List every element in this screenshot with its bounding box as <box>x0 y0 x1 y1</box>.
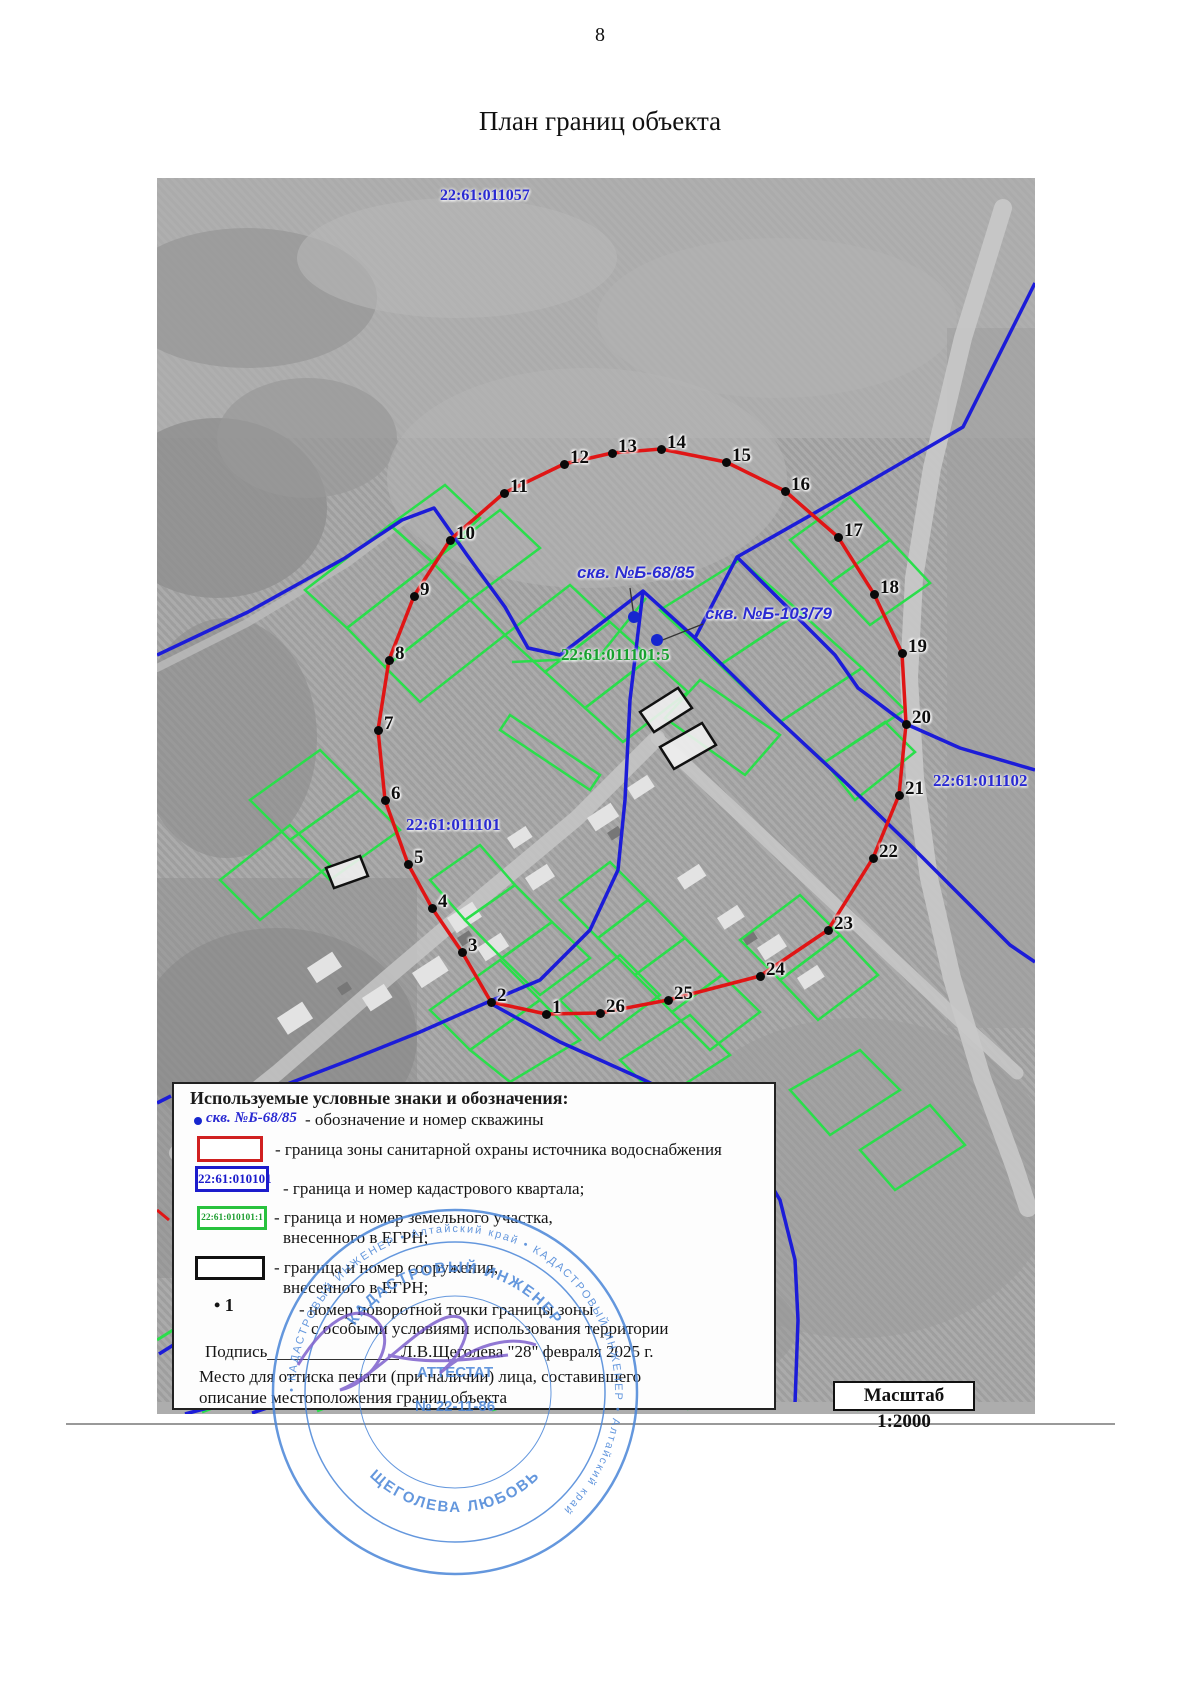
boundary-point-dot <box>895 791 904 800</box>
boundary-point-dot <box>596 1009 605 1018</box>
quarter-symbol: 22:61:010101 <box>195 1166 269 1192</box>
boundary-point-dot <box>458 948 467 957</box>
boundary-point-dot <box>428 904 437 913</box>
legend-item-text: - граница и номер кадастрового квартала; <box>283 1179 584 1199</box>
map-label-well-2-label: скв. №Б-103/79 <box>705 605 832 623</box>
boundary-point-label: 6 <box>391 784 401 803</box>
boundary-point-label: 24 <box>766 960 785 979</box>
boundary-point-dot <box>781 487 790 496</box>
boundary-point-dot <box>824 926 833 935</box>
map-label-well-1-label: скв. №Б-68/85 <box>577 564 695 582</box>
boundary-point-label: 1 <box>552 998 562 1017</box>
boundary-point-dot <box>722 458 731 467</box>
boundary-point-label: 20 <box>912 708 931 727</box>
parcel-symbol: 22:61:010101:1 <box>197 1206 267 1230</box>
page-title: План границ объекта <box>0 106 1200 137</box>
boundary-point-dot <box>898 649 907 658</box>
document-page: 8 План границ объекта <box>0 0 1200 1697</box>
boundary-point-dot <box>542 1010 551 1019</box>
boundary-point-label: 17 <box>844 521 863 540</box>
boundary-point-dot <box>664 996 673 1005</box>
legend-item-text: - обозначение и номер скважины <box>305 1110 544 1130</box>
boundary-point-label: 12 <box>570 448 589 467</box>
well-symbol <box>194 1117 202 1125</box>
boundary-point-dot <box>446 536 455 545</box>
boundary-point-label: 23 <box>834 914 853 933</box>
structure-symbol <box>195 1256 265 1280</box>
svg-text:ЩЕГОЛЕВА ЛЮБОВЬ: ЩЕГОЛЕВА ЛЮБОВЬ <box>367 1467 544 1516</box>
notary-stamp: • КАДАСТРОВЫЙ ИНЖЕНЕР • Алтайский край •… <box>268 1205 644 1585</box>
boundary-point-label: 8 <box>395 644 405 663</box>
boundary-point-label: 14 <box>667 433 686 452</box>
boundary-point-dot <box>756 972 765 981</box>
boundary-point-label: 19 <box>908 637 927 656</box>
page-number: 8 <box>0 24 1200 47</box>
boundary-point-label: 16 <box>791 475 810 494</box>
boundary-point-dot <box>487 998 496 1007</box>
boundary-point-label: 18 <box>880 578 899 597</box>
map-label-quarter-top: 22:61:011057 <box>440 188 530 205</box>
boundary-point-dot <box>560 460 569 469</box>
boundary-point-label: 5 <box>414 848 424 867</box>
red-zone-symbol <box>197 1136 263 1162</box>
turning-point-symbol: • 1 <box>214 1295 234 1316</box>
boundary-point-label: 26 <box>606 997 625 1016</box>
boundary-point-dot <box>608 449 617 458</box>
map-label-quarter-left: 22:61:011101 <box>406 816 500 834</box>
boundary-point-label: 22 <box>879 842 898 861</box>
boundary-point-label: 4 <box>438 892 448 911</box>
boundary-point-dot <box>902 720 911 729</box>
boundary-point-label: 9 <box>420 580 430 599</box>
boundary-point-dot <box>404 860 413 869</box>
legend-title: Используемые условные знаки и обозначени… <box>190 1088 569 1109</box>
stamp-arc-bottom-text: ЩЕГОЛЕВА ЛЮБОВЬ <box>367 1467 544 1516</box>
legend-well-label: скв. №Б-68/85 <box>206 1110 297 1127</box>
boundary-point-label: 13 <box>618 437 637 456</box>
legend-item-text: - граница зоны санитарной охраны источни… <box>275 1140 722 1160</box>
boundary-point-label: 3 <box>468 936 478 955</box>
signature-label: Подпись <box>205 1342 267 1362</box>
boundary-point-dot <box>410 592 419 601</box>
well-dot <box>628 611 640 623</box>
stamp-center-line2: № 22-11-86 <box>415 1398 495 1415</box>
scale-label: Масштаб 1:2000 <box>833 1381 975 1411</box>
boundary-point-dot <box>869 854 878 863</box>
map-label-quarter-right: 22:61:011102 <box>933 772 1027 790</box>
boundary-point-dot <box>500 489 509 498</box>
boundary-point-label: 15 <box>732 446 751 465</box>
stamp-center-line1: АТТЕСТАТ <box>417 1364 493 1381</box>
boundary-point-dot <box>385 656 394 665</box>
boundary-point-dot <box>381 796 390 805</box>
boundary-point-dot <box>870 590 879 599</box>
map-label-parcel-5: 22:61:011101:5 <box>561 646 670 664</box>
boundary-point-dot <box>834 533 843 542</box>
boundary-point-dot <box>657 445 666 454</box>
boundary-point-label: 2 <box>497 986 507 1005</box>
boundary-point-label: 21 <box>905 779 924 798</box>
boundary-point-label: 10 <box>456 524 475 543</box>
boundary-point-label: 25 <box>674 984 693 1003</box>
boundary-point-label: 11 <box>510 477 528 496</box>
boundary-point-label: 7 <box>384 714 394 733</box>
boundary-point-dot <box>374 726 383 735</box>
